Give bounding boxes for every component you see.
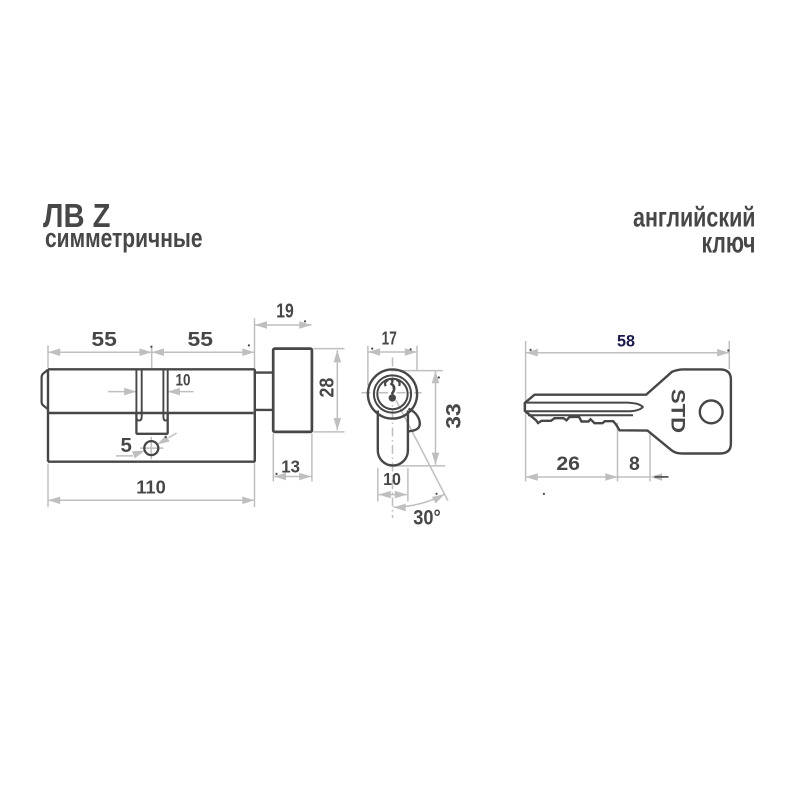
svg-text:8: 8: [629, 453, 640, 475]
svg-text:симметричные: симметричные: [45, 223, 203, 253]
svg-text:10: 10: [383, 469, 401, 489]
svg-text:110: 110: [136, 477, 166, 498]
svg-text:58: 58: [617, 332, 635, 351]
svg-text:55: 55: [91, 328, 117, 351]
svg-text:28: 28: [316, 378, 339, 398]
svg-text:17: 17: [382, 327, 397, 348]
svg-text:30°: 30°: [413, 507, 441, 530]
svg-text:ключ: ключ: [702, 226, 756, 259]
svg-text:26: 26: [556, 453, 580, 475]
svg-text:13: 13: [281, 457, 300, 477]
svg-text:STD: STD: [666, 389, 687, 433]
svg-text:19: 19: [276, 300, 294, 323]
svg-text:10: 10: [176, 371, 191, 390]
svg-text:5: 5: [120, 434, 131, 457]
svg-text:55: 55: [188, 328, 214, 351]
svg-text:33: 33: [443, 403, 466, 429]
